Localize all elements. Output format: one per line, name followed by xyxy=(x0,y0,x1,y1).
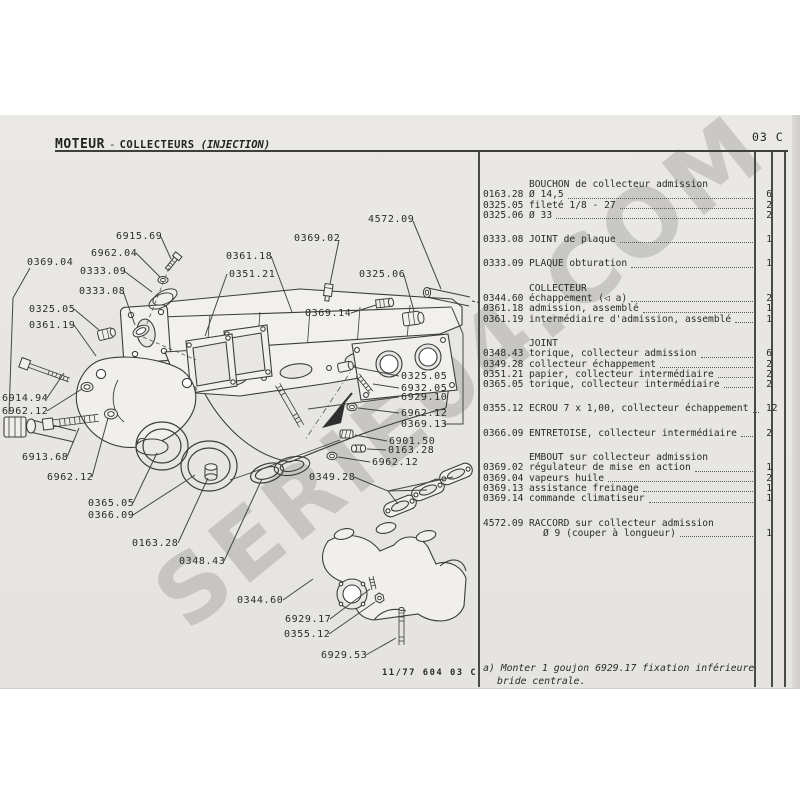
part-label: 0361.18 xyxy=(226,251,272,262)
part-label: 6929.10 xyxy=(401,392,447,403)
part-row: 0163.28Ø 14,56 xyxy=(483,190,772,200)
part-label: 0333.09 xyxy=(80,266,126,277)
part-label: 6962.04 xyxy=(91,248,137,259)
dot-leader xyxy=(735,322,753,323)
leader-line xyxy=(283,579,313,600)
part-qty: 2 xyxy=(756,380,772,390)
parts-group: COLLECTEUR0344.60échappement (◁ a)20361.… xyxy=(483,284,772,325)
dot-leader xyxy=(620,242,753,243)
part-row: 0333.08JOINT de plaque1 xyxy=(483,235,772,245)
part-label: 0365.05 xyxy=(88,498,134,509)
dot-leader xyxy=(620,208,753,209)
parts-group: 4572.09RACCORD sur collecteur admissionØ… xyxy=(483,519,772,540)
assembly-arrow-icon xyxy=(322,393,352,428)
part-label: 0325.05 xyxy=(29,304,75,315)
dot-leader xyxy=(556,218,753,219)
leader-line xyxy=(413,221,441,289)
part-row: Ø 9 (couper à longueur)1 xyxy=(483,529,772,539)
part-ref: 0333.08 xyxy=(483,235,525,245)
part-label: 0369.13 xyxy=(401,419,447,430)
parts-group: 0333.08JOINT de plaque1 xyxy=(483,235,772,245)
part-desc: PLAQUE obturation xyxy=(525,259,627,269)
part-label: 6914.94 xyxy=(2,393,48,404)
part-row: 0355.12ECROU 7 x 1,00, collecteur échapp… xyxy=(483,404,772,414)
dot-leader xyxy=(718,377,753,378)
leader-line xyxy=(355,435,387,441)
part-label: 6962.12 xyxy=(401,408,447,419)
part-label: 0349.28 xyxy=(309,472,355,483)
part-row: 0369.02régulateur de mise en action1 xyxy=(483,463,772,473)
part-row: 0366.09ENTRETOISE, collecteur intermédia… xyxy=(483,429,772,439)
oil-vapour-fitting xyxy=(4,417,76,442)
part-label: 6915.69 xyxy=(116,231,162,242)
part-qty: 1 xyxy=(756,315,772,325)
leader-line xyxy=(67,428,79,457)
leader-line xyxy=(354,477,388,491)
part-desc: ECROU 7 x 1,00, collecteur échappement xyxy=(525,404,749,414)
part-row: 0333.09PLAQUE obturation1 xyxy=(483,259,772,269)
scanned-catalog-page: SERIE04.COM MOTEUR-COLLECTEURS(INJECTION… xyxy=(0,0,800,800)
dot-leader xyxy=(649,502,753,503)
leader-line xyxy=(358,408,399,413)
dot-leader xyxy=(631,267,753,268)
part-label: 6962.12 xyxy=(372,457,418,468)
parts-group: 0355.12ECROU 7 x 1,00, collecteur échapp… xyxy=(483,404,772,414)
parts-group: EMBOUT sur collecteur admission0369.02ré… xyxy=(483,453,772,504)
part-label: 0351.21 xyxy=(229,269,275,280)
leader-line xyxy=(330,240,339,284)
leader-line xyxy=(338,457,370,462)
part-label: 0344.60 xyxy=(237,595,283,606)
exhaust-gaskets xyxy=(382,461,475,519)
footnote: a) Monter 1 goujon 6929.17 fixation infé… xyxy=(483,662,754,688)
dot-leader xyxy=(695,471,753,472)
leader-line xyxy=(161,237,171,259)
part-qty: 1 xyxy=(756,529,772,539)
part-ref: 0361.19 xyxy=(483,315,525,325)
parts-list: BOUCHON de collecteur admission0163.28Ø … xyxy=(483,152,772,553)
group-header-row: COLLECTEUR xyxy=(483,284,772,294)
dot-leader xyxy=(643,312,753,313)
dot-leader xyxy=(680,536,753,537)
leader-line xyxy=(367,449,386,450)
part-ref: 0333.09 xyxy=(483,259,525,269)
leader-line xyxy=(366,638,396,655)
parts-group: JOINT0348.43torique, collecteur admissio… xyxy=(483,339,772,390)
part-label: 0369.14 xyxy=(305,308,351,319)
part-label: 6929.17 xyxy=(285,614,331,625)
part-label: 0355.12 xyxy=(284,629,330,640)
part-row: 0325.06Ø 332 xyxy=(483,211,772,221)
part-label: 0325.06 xyxy=(359,269,405,280)
dot-leader xyxy=(724,387,753,388)
part-label: 0325.05 xyxy=(401,371,447,382)
part-qty: 2 xyxy=(756,429,772,439)
leader-line xyxy=(178,478,208,543)
part-desc: intermédiaire d'admission, assemblé xyxy=(525,315,731,325)
footnote-line-2: bride centrale. xyxy=(483,675,754,688)
part-desc: JOINT de plaque xyxy=(525,235,616,245)
part-label: 6929.53 xyxy=(321,650,367,661)
part-desc: commande climatiseur xyxy=(525,494,645,504)
part-desc: torique, collecteur intermédiaire xyxy=(525,380,720,390)
leader-line xyxy=(136,253,160,277)
part-ref: 0325.06 xyxy=(483,211,525,221)
parts-group: 0366.09ENTRETOISE, collecteur intermédia… xyxy=(483,429,772,439)
group-header-row: BOUCHON de collecteur admission xyxy=(483,180,772,190)
parts-group: BOUCHON de collecteur admission0163.28Ø … xyxy=(483,180,772,221)
dot-leader xyxy=(631,301,753,302)
part-ref: 0355.12 xyxy=(483,404,525,414)
part-label: 0369.04 xyxy=(27,257,73,268)
part-label: 0366.09 xyxy=(88,510,134,521)
dot-leader xyxy=(753,412,759,413)
leader-line xyxy=(74,309,99,330)
leader-line xyxy=(124,271,152,292)
part-qty: 1 xyxy=(756,259,772,269)
leader-line xyxy=(133,475,195,515)
part-ref: 0366.09 xyxy=(483,429,525,439)
dot-leader xyxy=(568,198,753,199)
part-desc: Ø 33 xyxy=(525,211,552,221)
part-label: 0163.28 xyxy=(388,445,434,456)
part-row: 0325.05fileté 1/8 - 272 xyxy=(483,201,772,211)
leader-line xyxy=(74,325,96,356)
part-label: 6913.68 xyxy=(22,452,68,463)
part-row: 0361.19intermédiaire d'admission, assemb… xyxy=(483,315,772,325)
part-row: 0365.05torique, collecteur intermédiaire… xyxy=(483,380,772,390)
part-ref: 0369.14 xyxy=(483,494,525,504)
part-qty: 2 xyxy=(756,211,772,221)
part-label: 0369.02 xyxy=(294,233,340,244)
part-label: 6962.12 xyxy=(2,406,48,417)
exhaust-manifold xyxy=(323,521,466,621)
part-qty: 1 xyxy=(756,235,772,245)
dot-leader xyxy=(741,436,753,437)
dot-leader xyxy=(660,367,753,368)
water-housing xyxy=(76,357,195,455)
part-label: 6962.12 xyxy=(47,472,93,483)
part-label: 0361.19 xyxy=(29,320,75,331)
plug-cap xyxy=(205,464,217,480)
part-label: 0348.43 xyxy=(179,556,225,567)
part-ref: 4572.09 xyxy=(483,519,525,529)
part-label: 0163.28 xyxy=(132,538,178,549)
part-row: 0369.14commande climatiseur1 xyxy=(483,494,772,504)
part-qty: 12 xyxy=(762,404,778,414)
leader-line xyxy=(224,479,262,561)
footnote-line-1: a) Monter 1 goujon 6929.17 fixation infé… xyxy=(483,662,754,675)
part-label: 4572.09 xyxy=(368,214,414,225)
part-qty: 1 xyxy=(756,494,772,504)
part-ref: 0365.05 xyxy=(483,380,525,390)
dot-leader xyxy=(701,357,753,358)
part-desc: Ø 9 (couper à longueur) xyxy=(525,529,676,539)
part-label: 0333.08 xyxy=(79,286,125,297)
parts-group: 0333.09PLAQUE obturation1 xyxy=(483,259,772,269)
dot-leader xyxy=(608,481,753,482)
dot-leader xyxy=(643,491,753,492)
plate-code: 11/77 604 03 C xyxy=(382,668,477,678)
leader-line xyxy=(133,453,157,503)
part-desc: ENTRETOISE, collecteur intermédiaire xyxy=(525,429,737,439)
